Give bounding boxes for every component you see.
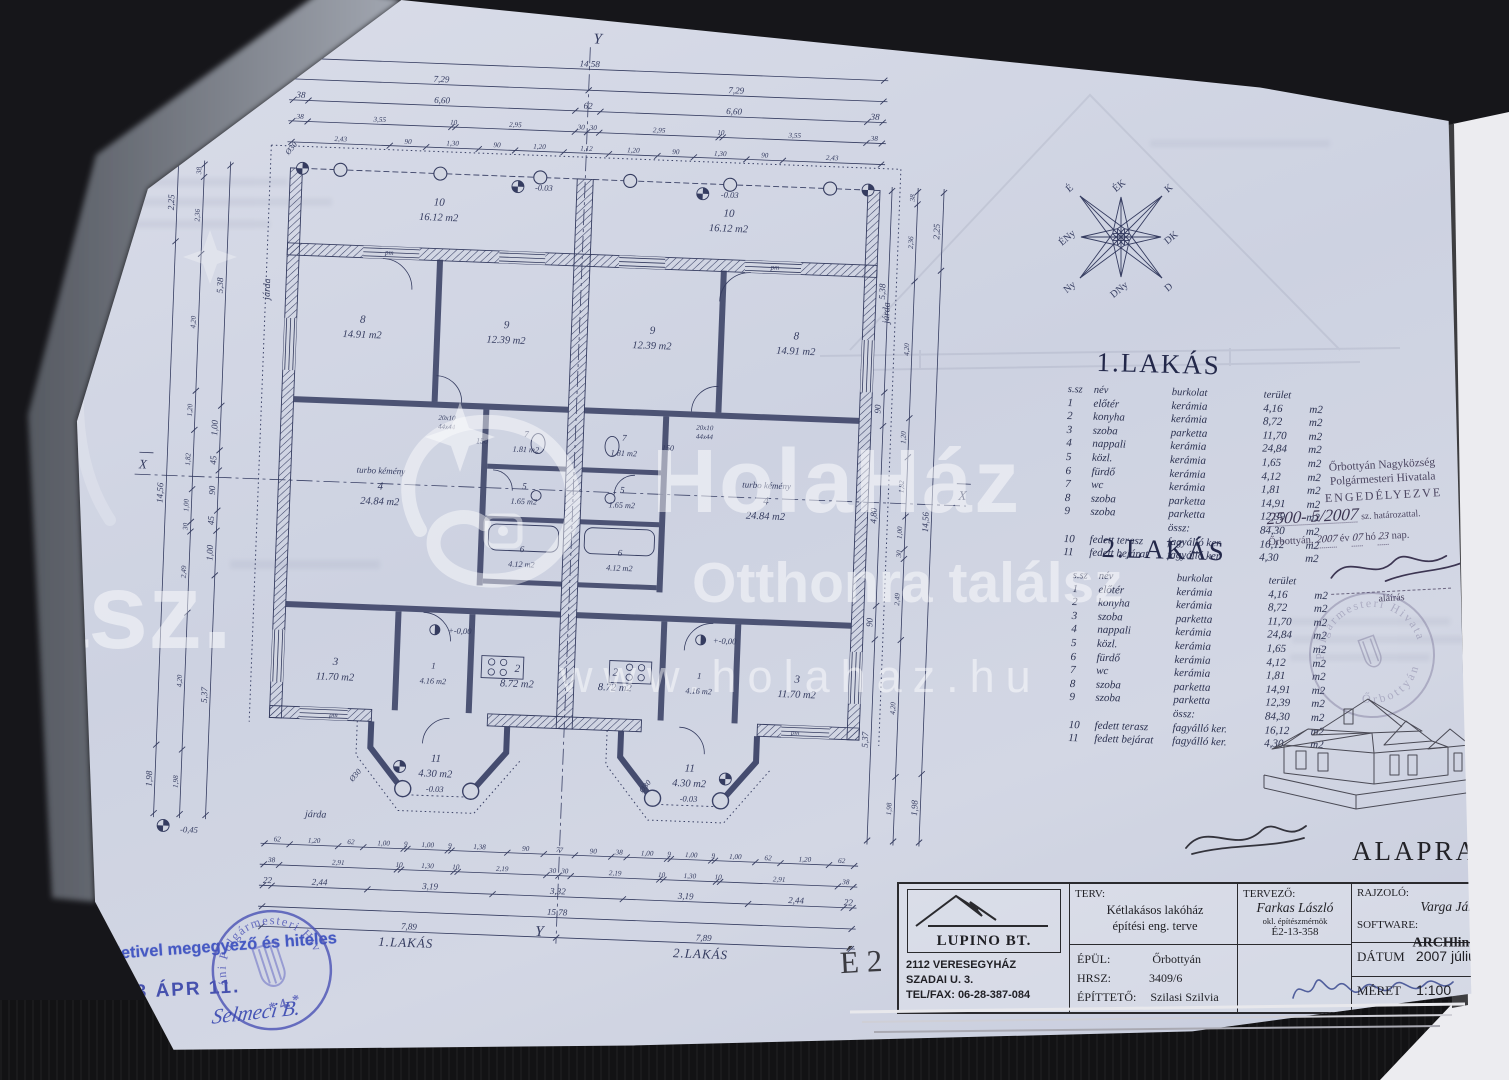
photo-of-floor-plan-sheet: 14,587,297,29386,60626,6038383,55102,953…: [0, 0, 1509, 1080]
page-stack-edges: [0, 0, 1509, 1080]
